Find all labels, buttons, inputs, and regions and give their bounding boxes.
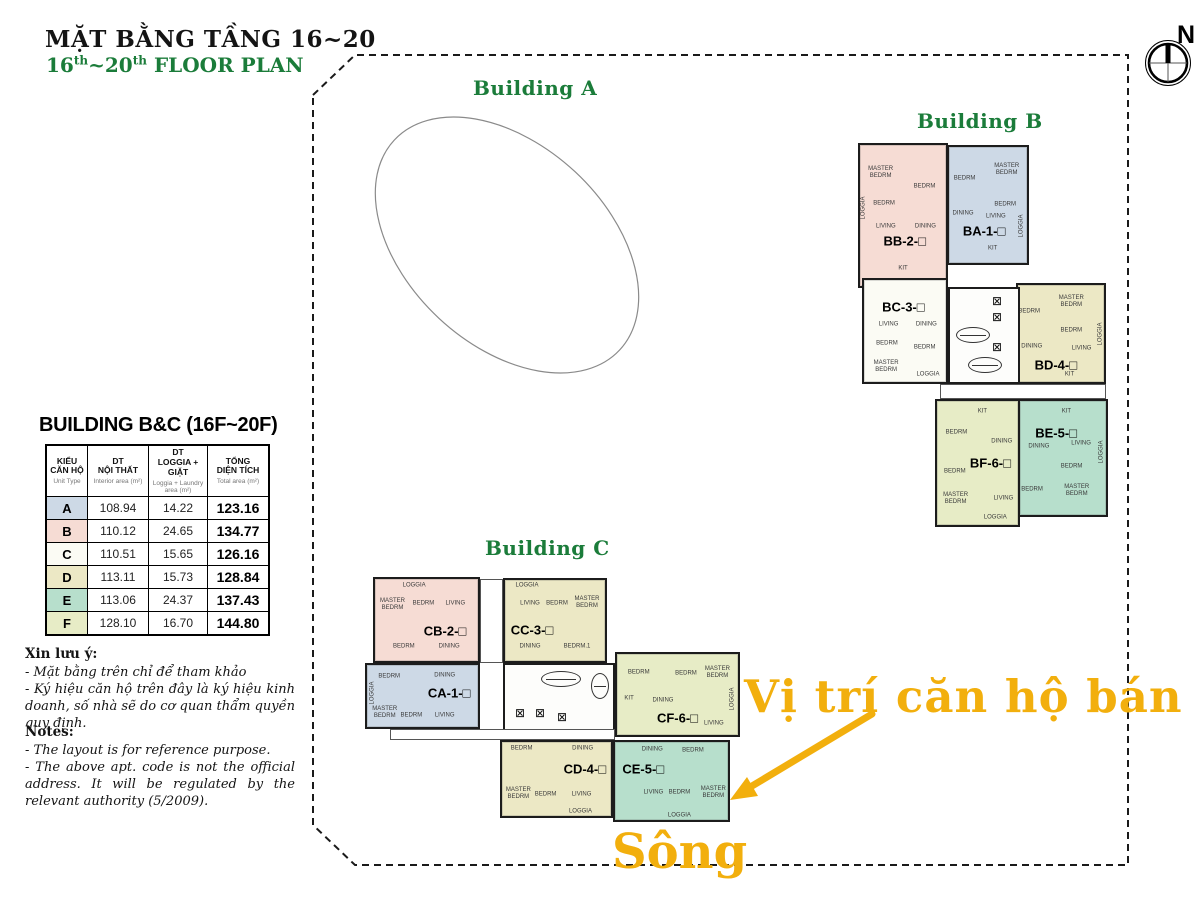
unit-CD-4: BEDRMDININGMASTER BEDRMBEDRMLIVINGLOGGIA… (500, 740, 613, 818)
room-label: LOGGIA (369, 681, 376, 704)
room-label: DINING (434, 672, 455, 679)
room-label: LIVING (876, 223, 896, 230)
area-value-cell: 108.94 (88, 497, 149, 520)
room-label: BEDRM (873, 201, 895, 208)
elevator-icon: ⊠ (515, 707, 525, 719)
room-label: KIT (978, 409, 987, 416)
stair-icon (956, 327, 990, 343)
room-label: LOGGIA (515, 582, 538, 589)
unit-BB-2: MASTER BEDRMBEDRMBEDRMLIVINGDININGKITLOG… (858, 143, 948, 288)
room-label: BEDRM (682, 748, 704, 755)
stair-icon (968, 357, 1002, 373)
room-label: DINING (991, 438, 1012, 445)
room-label: BEDRM (378, 674, 400, 681)
area-value-cell: 15.65 (149, 543, 208, 566)
room-label: LIVING (520, 601, 540, 608)
unit-code-label: CE-5-□ (622, 761, 664, 776)
room-label: BEDRM (535, 791, 557, 798)
elevator-icon: ⊠ (992, 311, 1002, 323)
room-label: LOGGIA (916, 371, 939, 378)
room-label: LOGGIA (984, 514, 1007, 521)
room-label: BEDRM (944, 468, 966, 475)
room-label: BEDRM (1061, 464, 1083, 471)
area-value-cell: 16.70 (149, 612, 208, 636)
room-label: MASTER BEDRM (506, 787, 531, 801)
room-label: BEDRM (994, 202, 1016, 209)
room-label: LOGGIA (569, 808, 592, 815)
area-value-cell: 123.16 (208, 497, 270, 520)
room-label: DINING (520, 644, 541, 651)
room-label: DINING (1028, 443, 1049, 450)
unit-BF-6: KITBEDRMDININGBEDRMMASTER BEDRMLIVINGLOG… (935, 399, 1020, 527)
unit-code-label: CA-1-□ (428, 685, 471, 700)
room-label: MASTER BEDRM (372, 706, 397, 720)
unit-code-label: BA-1-□ (963, 223, 1006, 238)
area-value-cell: 134.77 (208, 520, 270, 543)
area-value-cell: 128.84 (208, 566, 270, 589)
unit-code-label: CC-3-□ (511, 623, 554, 638)
elevator-icon: ⊠ (992, 341, 1002, 353)
room-label: BEDRM (914, 345, 936, 352)
unit-CC-3: LOGGIALIVINGBEDRMMASTER BEDRMDININGBEDRM… (503, 578, 607, 663)
area-value-cell: 144.80 (208, 612, 270, 636)
unit-type-cell: E (46, 589, 88, 612)
building-b-label: Building B (917, 109, 1043, 133)
area-value-cell: 110.12 (88, 520, 149, 543)
table-row: D113.1115.73128.84 (46, 566, 269, 589)
river-label: Sông (612, 824, 747, 880)
room-label: BEDRM (1021, 486, 1043, 493)
corridor (480, 579, 503, 663)
table-row: F128.1016.70144.80 (46, 612, 269, 636)
area-value-cell: 128.10 (88, 612, 149, 636)
room-label: LIVING (644, 790, 664, 797)
room-label: DINING (953, 211, 974, 218)
room-label: DINING (915, 223, 936, 230)
table-row: A108.9414.22123.16 (46, 497, 269, 520)
elevator-icon: ⊠ (557, 711, 567, 723)
stair-icon (541, 671, 581, 687)
column-header-interior: DT NỘI THẤT Interior area (m²) (88, 445, 149, 497)
elevator-icon: ⊠ (535, 707, 545, 719)
corridor (940, 384, 1106, 399)
unit-type-cell: D (46, 566, 88, 589)
unit-CE-5: DININGBEDRMLIVINGBEDRMMASTER BEDRMLOGGIA… (613, 740, 730, 822)
column-header-loggia: DT LOGGIA + GIẶT Loggia + Laundry area (… (149, 445, 208, 497)
room-label: LOGGIA (1097, 322, 1104, 345)
area-value-cell: 14.22 (149, 497, 208, 520)
unit-BE-5: KITDININGLIVINGBEDRMBEDRMMASTER BEDRMLOG… (1018, 399, 1108, 517)
room-label: BEDRM (401, 712, 423, 719)
room-label: KIT (1062, 409, 1071, 416)
room-label: DINING (572, 746, 593, 753)
room-label: DINING (642, 746, 663, 753)
unit-type-cell: A (46, 497, 88, 520)
room-label: MASTER BEDRM (994, 163, 1019, 177)
room-label: MASTER BEDRM (1064, 484, 1089, 498)
area-value-cell: 24.37 (149, 589, 208, 612)
room-label: BEDRM (954, 176, 976, 183)
room-label: LIVING (435, 712, 455, 719)
room-label: BEDRM (1060, 327, 1082, 334)
room-label: DINING (1021, 344, 1042, 351)
room-label: BEDRM (675, 671, 697, 678)
room-label: LOGGIA (730, 687, 737, 710)
room-label: LOGGIA (668, 813, 691, 820)
room-label: KIT (898, 266, 907, 273)
unit-code-label: BB-2-□ (883, 233, 926, 248)
area-table: KIỂU CĂN HỘ Unit Type DT NỘI THẤT Interi… (45, 444, 270, 636)
area-value-cell: 126.16 (208, 543, 270, 566)
room-label: LIVING (704, 721, 724, 728)
table-row: E113.0624.37137.43 (46, 589, 269, 612)
area-value-cell: 113.11 (88, 566, 149, 589)
building-c-label: Building C (485, 536, 610, 560)
unit-CA-1: BEDRMDININGMASTER BEDRMBEDRMLIVINGLOGGIA… (365, 663, 480, 729)
area-value-cell: 24.65 (149, 520, 208, 543)
room-label: MASTER BEDRM (380, 598, 405, 612)
area-value-cell: 137.43 (208, 589, 270, 612)
unit-BD-4: BEDRMMASTER BEDRMBEDRMDININGLIVINGKITLOG… (1016, 283, 1106, 384)
table-row: B110.1224.65134.77 (46, 520, 269, 543)
room-label: BEDRM (1018, 309, 1040, 316)
building-a-label: Building A (473, 76, 597, 100)
room-label: BEDRM (914, 184, 936, 191)
unit-code-label: CF-6-□ (657, 710, 698, 725)
unit-code-label: BF-6-□ (970, 456, 1011, 471)
unit-BC-3: LIVINGDININGBEDRMBEDRMMASTER BEDRMLOGGIA… (862, 278, 948, 384)
room-label: LIVING (1071, 441, 1091, 448)
column-header-unit-type: KIỂU CĂN HỘ Unit Type (46, 445, 88, 497)
room-label: MASTER BEDRM (701, 787, 726, 801)
room-label: MASTER BEDRM (874, 360, 899, 374)
column-header-total: TỔNG DIỆN TÍCH Total area (m²) (208, 445, 270, 497)
sale-location-label: Vị trí căn hộ bán (744, 670, 1183, 723)
table-row: C110.5115.65126.16 (46, 543, 269, 566)
room-label: BEDRM (413, 600, 435, 607)
unit-type-cell: B (46, 520, 88, 543)
unit-BA-1: BEDRMMASTER BEDRMBEDRMDININGLIVINGKITLOG… (947, 145, 1029, 265)
room-label: BEDRM (511, 746, 533, 753)
room-label: KIT (624, 696, 633, 703)
room-label: KIT (1065, 372, 1074, 379)
unit-code-label: BE-5-□ (1035, 425, 1077, 440)
room-label: KIT (988, 246, 997, 253)
room-label: DINING (916, 321, 937, 328)
unit-code-label: CB-2-□ (424, 624, 467, 639)
unit-type-cell: C (46, 543, 88, 566)
unit-code-label: BC-3-□ (882, 299, 925, 314)
room-label: MASTER BEDRM (868, 166, 893, 180)
room-label: BEDRM (628, 670, 650, 677)
room-label: MASTER BEDRM (943, 492, 968, 506)
room-label: LOGGIA (1019, 214, 1026, 237)
room-label: BEDRM.1 (564, 644, 591, 651)
room-label: LIVING (879, 321, 899, 328)
area-value-cell: 113.06 (88, 589, 149, 612)
room-label: BEDRM (546, 601, 568, 608)
room-label: LIVING (986, 213, 1006, 220)
room-label: LOGGIA (1098, 441, 1105, 464)
room-label: BEDRM (876, 341, 898, 348)
room-label: DINING (652, 698, 673, 705)
room-label: LIVING (445, 600, 465, 607)
unit-CB-2: LOGGIAMASTER BEDRMBEDRMLIVINGBEDRMDINING… (373, 577, 480, 663)
unit-code-label: BD-4-□ (1035, 357, 1078, 372)
room-label: BEDRM (946, 430, 968, 437)
room-label: MASTER BEDRM (705, 667, 730, 681)
floor-plan-canvas: MẶT BẰNG TẦNG 16~20 16th~20th FLOOR PLAN… (0, 0, 1200, 897)
elevator-icon: ⊠ (992, 295, 1002, 307)
unit-CF-6: BEDRMBEDRMMASTER BEDRMKITDININGLIVINGLOG… (615, 652, 740, 737)
unit-code-label: CD-4-□ (564, 762, 607, 777)
area-value-cell: 110.51 (88, 543, 149, 566)
room-label: LIVING (994, 496, 1014, 503)
room-label: MASTER BEDRM (1059, 296, 1084, 310)
room-label: BEDRM (669, 790, 691, 797)
room-label: MASTER BEDRM (574, 596, 599, 610)
building-core: ⊠⊠⊠ (948, 287, 1020, 384)
room-label: DINING (439, 644, 460, 651)
area-value-cell: 15.73 (149, 566, 208, 589)
room-label: LIVING (1072, 346, 1092, 353)
corridor (390, 729, 615, 740)
stair-icon (591, 673, 609, 699)
area-table-body: A108.9414.22123.16B110.1224.65134.77C110… (46, 497, 269, 636)
room-label: LOGGIA (861, 197, 868, 220)
building-core: ⊠⊠⊠ (503, 663, 615, 737)
unit-type-cell: F (46, 612, 88, 636)
room-label: BEDRM (393, 644, 415, 651)
room-label: LIVING (572, 791, 592, 798)
room-label: LOGGIA (403, 582, 426, 589)
